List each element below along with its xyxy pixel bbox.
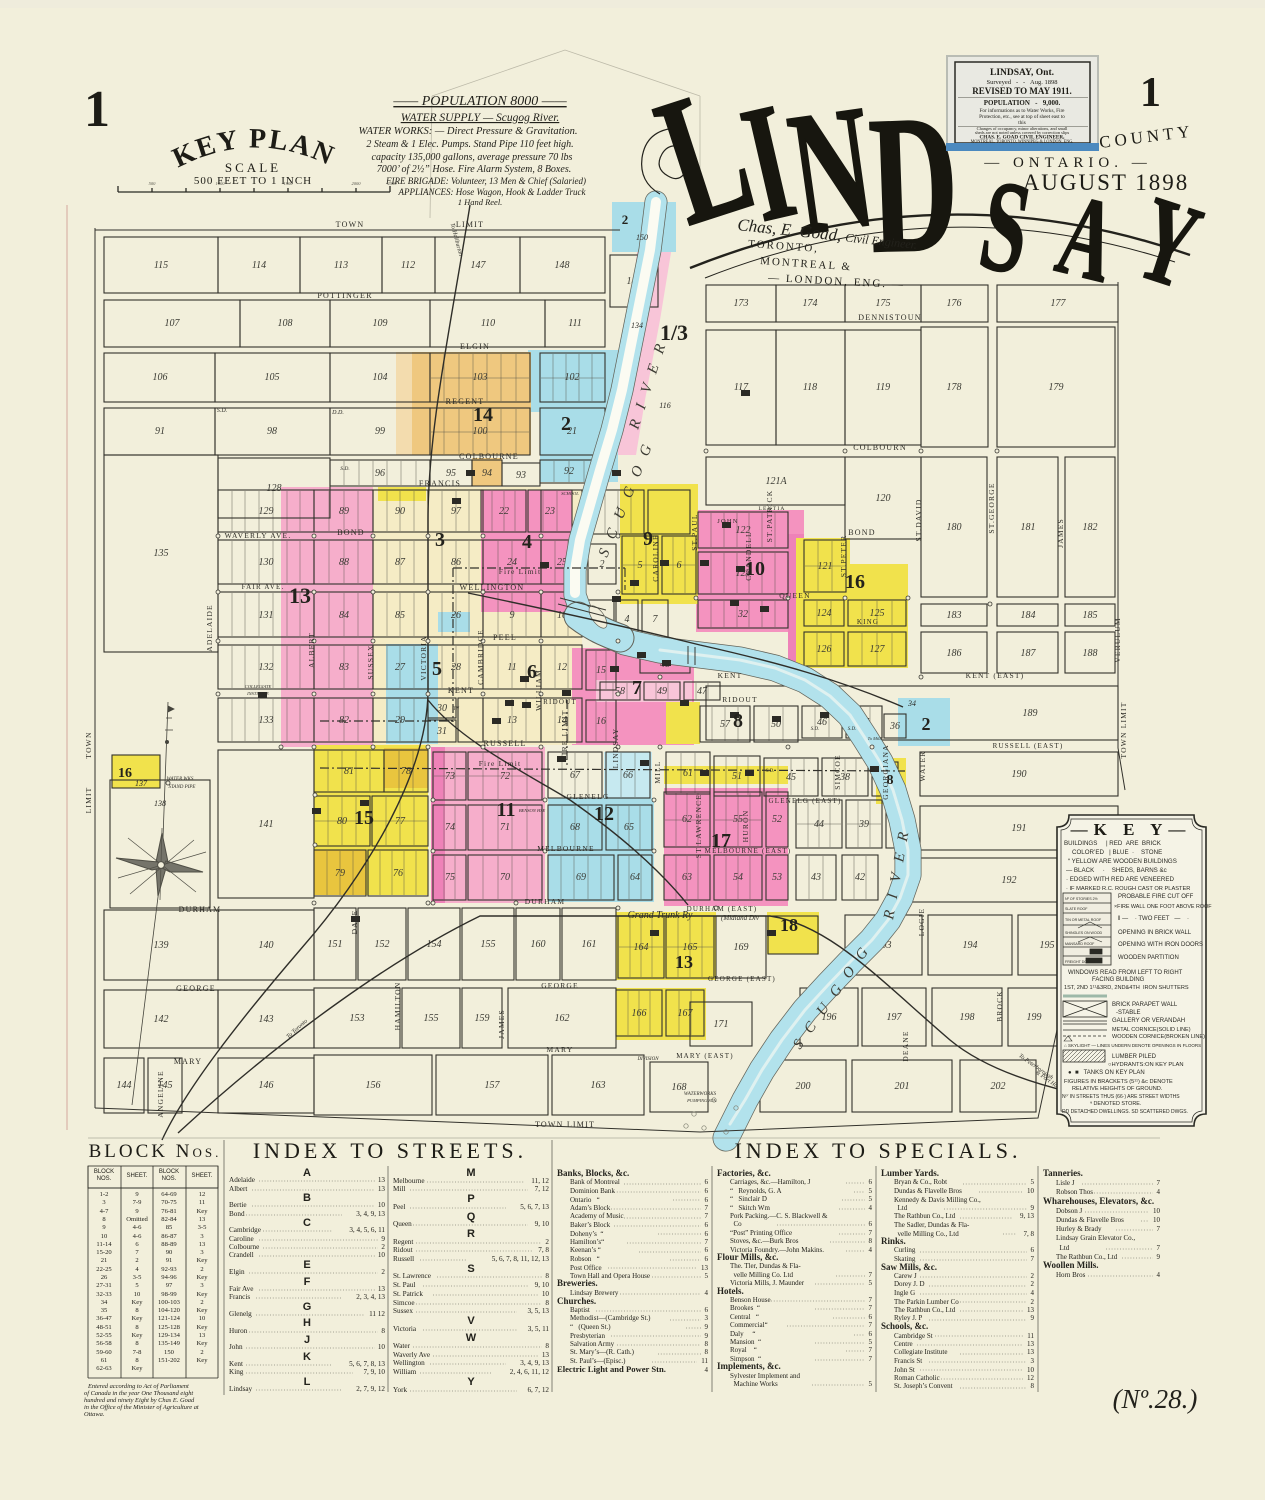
svg-text:2: 2: [545, 1238, 549, 1246]
svg-text:HURON: HURON: [741, 810, 750, 843]
svg-text:2: 2: [1031, 1272, 1035, 1280]
svg-text:The Sadler, Dundas & Fla-: The Sadler, Dundas & Fla-: [894, 1221, 970, 1229]
svg-text:Crandell: Crandell: [229, 1251, 254, 1259]
svg-text:Bond: Bond: [229, 1210, 245, 1218]
svg-text:5, 6, 7, 13: 5, 6, 7, 13: [520, 1203, 549, 1211]
svg-text:2: 2: [200, 1299, 203, 1306]
svg-text:100: 100: [473, 426, 488, 437]
svg-text:48-51: 48-51: [96, 1324, 111, 1331]
svg-text:WINDOWS READ FROM LEFT TO RIGH: WINDOWS READ FROM LEFT TO RIGHT: [1068, 970, 1183, 976]
svg-text:CAMBRIDGE: CAMBRIDGE: [476, 629, 485, 685]
svg-text:St. Mary’s—(R. Cath.): St. Mary’s—(R. Cath.): [570, 1348, 635, 1356]
svg-text:“ Reynolds, G. A: “ Reynolds, G. A: [730, 1187, 782, 1195]
svg-text:GLENELG: GLENELG: [567, 792, 610, 801]
svg-text:39: 39: [858, 819, 869, 830]
svg-text:The Rathbun Co., Ltd: The Rathbun Co., Ltd: [894, 1212, 956, 1220]
svg-text:BLOCK: BLOCK: [94, 1169, 114, 1175]
svg-text:8: 8: [869, 1237, 873, 1245]
svg-text:159: 159: [475, 1013, 490, 1024]
svg-text:Horn Bros: Horn Bros: [1056, 1271, 1086, 1279]
svg-text:5: 5: [705, 1272, 709, 1280]
svg-text:7: 7: [869, 1271, 873, 1279]
svg-text:23: 23: [545, 506, 555, 517]
svg-text:INSTITUTE: INSTITUTE: [246, 691, 269, 696]
svg-text:Key: Key: [132, 1315, 144, 1322]
svg-text:6: 6: [705, 1221, 709, 1229]
svg-text:61: 61: [101, 1357, 108, 1364]
svg-text:LINDSAY: LINDSAY: [611, 728, 620, 769]
svg-text:178: 178: [947, 382, 962, 393]
svg-text:10: 10: [378, 1201, 386, 1209]
svg-text:PUMPING STA.: PUMPING STA.: [686, 1098, 717, 1103]
svg-text:182: 182: [1083, 522, 1098, 533]
svg-text:TN: TN: [453, 707, 460, 712]
svg-text:1: 1: [84, 81, 110, 138]
svg-text:11, 12: 11, 12: [531, 1177, 549, 1185]
svg-text:82-84: 82-84: [161, 1216, 177, 1223]
svg-text:126: 126: [817, 644, 832, 655]
svg-text:74: 74: [445, 822, 455, 833]
svg-text:128: 128: [267, 483, 282, 494]
svg-text:6: 6: [705, 1187, 709, 1195]
svg-text:12: 12: [1027, 1374, 1035, 1382]
svg-text:10: 10: [1027, 1187, 1035, 1195]
svg-text:92: 92: [564, 466, 574, 477]
svg-text:BROCK: BROCK: [995, 990, 1004, 1022]
svg-text:3, 4, 5, 6, 11: 3, 4, 5, 6, 11: [349, 1226, 385, 1234]
svg-text:97: 97: [166, 1282, 173, 1289]
svg-text:164: 164: [634, 942, 649, 953]
svg-text:F: F: [304, 1276, 311, 1288]
svg-text:59-60: 59-60: [96, 1349, 112, 1356]
svg-text:BLOCK: BLOCK: [159, 1169, 179, 1175]
svg-text:WELLINGTON: WELLINGTON: [460, 583, 525, 592]
svg-text:13: 13: [199, 1332, 206, 1339]
svg-text:Victoria: Victoria: [393, 1325, 417, 1333]
svg-text:Lindsay Grain Elevator Co.,: Lindsay Grain Elevator Co.,: [1056, 1234, 1135, 1242]
svg-text:Russell: Russell: [393, 1255, 414, 1263]
svg-text:Wharehouses, Elevators, &c.: Wharehouses, Elevators, &c.: [1043, 1196, 1154, 1206]
svg-text:St. Lawrence: St. Lawrence: [393, 1272, 431, 1280]
svg-text:32-33: 32-33: [96, 1291, 112, 1298]
svg-text:DURHAM: DURHAM: [525, 897, 566, 906]
svg-text:6: 6: [705, 1255, 709, 1263]
svg-text:13: 13: [289, 583, 311, 608]
svg-text:PROBABLE FIRE CUT OFF: PROBABLE FIRE CUT OFF: [1118, 894, 1194, 900]
svg-text:P: P: [467, 1193, 474, 1205]
svg-text:13: 13: [378, 1185, 386, 1193]
svg-text:2: 2: [922, 714, 931, 734]
svg-text:Ottawa.: Ottawa.: [84, 1411, 105, 1418]
svg-text:MARY: MARY: [174, 1057, 202, 1066]
svg-text:SHINGLES ON WOOD: SHINGLES ON WOOD: [1065, 931, 1103, 935]
svg-text:Sylvester Implement and: Sylvester Implement and: [730, 1372, 800, 1380]
svg-text:G: G: [303, 1301, 312, 1313]
svg-text:Collegiate Institute: Collegiate Institute: [894, 1348, 947, 1356]
svg-text:14: 14: [473, 404, 493, 426]
svg-text:7: 7: [869, 1296, 873, 1304]
svg-text:76: 76: [393, 868, 403, 879]
svg-text:139: 139: [154, 940, 169, 951]
svg-text:E: E: [303, 1259, 310, 1271]
svg-text:Lindsay: Lindsay: [229, 1385, 253, 1393]
svg-text:Bank of Montreal: Bank of Montreal: [570, 1178, 620, 1186]
svg-text:of Canada in the year One Thou: of Canada in the year One Thousand eight: [84, 1390, 193, 1397]
svg-text:The Parkin Lumber Co: The Parkin Lumber Co: [894, 1298, 959, 1306]
svg-text:Commercial“: Commercial“: [730, 1321, 768, 1329]
svg-text:6: 6: [705, 1246, 709, 1254]
svg-text:13: 13: [675, 952, 693, 972]
svg-text:36: 36: [889, 721, 900, 732]
svg-text:90: 90: [395, 506, 405, 517]
svg-text:Elgin: Elgin: [229, 1268, 245, 1276]
svg-text:JOHN: JOHN: [717, 518, 738, 525]
svg-text:TOWN LIMIT: TOWN LIMIT: [535, 1120, 595, 1129]
svg-text:S.D.: S.D.: [217, 408, 227, 414]
svg-text:13: 13: [378, 1176, 386, 1184]
svg-text:9: 9: [1157, 1253, 1161, 1261]
svg-text:Albert: Albert: [229, 1185, 247, 1193]
svg-text:Adam’s Block: Adam’s Block: [570, 1204, 611, 1212]
svg-text:Doheny’s “: Doheny’s “: [570, 1230, 603, 1238]
svg-text:45: 45: [786, 772, 796, 783]
svg-text:113: 113: [334, 260, 348, 271]
svg-text:187: 187: [1021, 648, 1037, 659]
svg-text:FAIR AVE.: FAIR AVE.: [242, 583, 285, 591]
svg-text:Central “: Central “: [730, 1313, 759, 1321]
svg-text:98: 98: [267, 426, 277, 437]
svg-text:62: 62: [682, 814, 692, 825]
svg-text:8: 8: [705, 1348, 709, 1356]
svg-text:13: 13: [1027, 1340, 1035, 1348]
svg-text:4: 4: [869, 1204, 873, 1212]
svg-text:90: 90: [166, 1249, 173, 1256]
svg-text:129: 129: [259, 506, 274, 517]
svg-text:3-5: 3-5: [198, 1224, 207, 1231]
svg-text:Curling: Curling: [894, 1246, 916, 1254]
svg-text:S.D.: S.D.: [766, 769, 775, 774]
svg-text:Dundas & Flavelle Bros: Dundas & Flavelle Bros: [1056, 1216, 1124, 1224]
svg-text:Hurley & Brady: Hurley & Brady: [1056, 1225, 1102, 1233]
svg-text:Co: Co: [730, 1220, 742, 1228]
svg-text:144: 144: [117, 1080, 132, 1091]
svg-text:Huron: Huron: [229, 1327, 248, 1335]
svg-text:Churches.: Churches.: [557, 1296, 596, 1306]
svg-text:7, 12: 7, 12: [535, 1185, 550, 1193]
svg-text:GLENELG (EAST): GLENELG (EAST): [769, 797, 842, 805]
svg-text:151: 151: [328, 939, 343, 950]
svg-text:S.D.: S.D.: [340, 466, 349, 472]
svg-text:WAVERLY AVE.: WAVERLY AVE.: [225, 531, 292, 540]
svg-text:● ■ TANKS ON KEY PLAN: ● ■ TANKS ON KEY PLAN: [1068, 1070, 1145, 1076]
svg-text:143: 143: [259, 1014, 274, 1025]
svg-text:87: 87: [395, 557, 406, 568]
svg-text:DALE: DALE: [350, 910, 359, 935]
svg-text:DEANE: DEANE: [901, 1030, 910, 1061]
svg-text:13: 13: [199, 1241, 206, 1248]
svg-text:76-81: 76-81: [161, 1208, 176, 1215]
svg-text:Benson House: Benson House: [730, 1296, 771, 1304]
svg-text:13: 13: [1027, 1306, 1035, 1314]
svg-text:190: 190: [1012, 769, 1027, 780]
svg-text:86-87: 86-87: [161, 1233, 177, 1240]
svg-text:108: 108: [278, 318, 293, 329]
svg-text:To Mills: To Mills: [868, 736, 883, 741]
svg-text:104-120: 104-120: [158, 1307, 181, 1314]
svg-text:BLOCK NOS.: BLOCK NOS.: [89, 1141, 222, 1162]
svg-text:198: 198: [960, 1012, 975, 1023]
svg-text:2: 2: [200, 1266, 203, 1273]
svg-text:FIRE LIMIT: FIRE LIMIT: [560, 710, 569, 761]
svg-text:INDEX TO STREETS.: INDEX TO STREETS.: [253, 1138, 527, 1163]
svg-text:125-128: 125-128: [158, 1324, 181, 1331]
svg-text:18: 18: [780, 915, 798, 935]
svg-text:16: 16: [845, 571, 865, 593]
svg-text:12: 12: [557, 662, 567, 673]
svg-text:TIN OR METAL ROOF: TIN OR METAL ROOF: [1065, 918, 1102, 922]
svg-text:7-8: 7-8: [133, 1349, 142, 1356]
svg-text:176: 176: [947, 298, 962, 309]
svg-text:OPENING WITH IRON DOORS: OPENING WITH IRON DOORS: [1118, 942, 1203, 948]
svg-text:METAL CORNICE(SOLID LINE): METAL CORNICE(SOLID LINE): [1112, 1027, 1191, 1033]
svg-text:Roman Catholic: Roman Catholic: [894, 1374, 940, 1382]
svg-text:77: 77: [395, 816, 406, 827]
svg-text:1 Hand Reel.: 1 Hand Reel.: [458, 197, 503, 207]
svg-text:152: 152: [375, 939, 390, 950]
svg-text:138: 138: [154, 799, 166, 808]
svg-text:Key: Key: [132, 1332, 144, 1339]
svg-text:2: 2: [1031, 1280, 1035, 1288]
svg-text:8: 8: [705, 1340, 709, 1348]
svg-text:TOWN LIMIT: TOWN LIMIT: [1119, 701, 1128, 758]
svg-text:Methodist—(Cambridge St.): Methodist—(Cambridge St.): [570, 1314, 651, 1322]
svg-text:65: 65: [624, 822, 634, 833]
svg-text:42: 42: [855, 872, 865, 883]
svg-text:16: 16: [118, 766, 132, 781]
svg-text:102: 102: [565, 372, 580, 383]
svg-text:capacity 135,000 gallons, ave: capacity 135,000 gallons, average pressu…: [372, 152, 573, 163]
svg-text:KING: KING: [857, 618, 879, 626]
svg-text:4: 4: [625, 614, 630, 625]
svg-text:velle Milling Co. Ltd: velle Milling Co. Ltd: [730, 1271, 793, 1279]
svg-text:John St: John St: [894, 1366, 915, 1374]
svg-text:BOND: BOND: [337, 528, 364, 537]
svg-text:Dobson J: Dobson J: [1056, 1207, 1083, 1215]
svg-text:4: 4: [1031, 1289, 1035, 1297]
svg-text:Entered according to Act of Pa: Entered according to Act of Parliament: [87, 1383, 189, 1390]
svg-text:11: 11: [701, 1357, 708, 1365]
svg-text:“ Sinclair D: “ Sinclair D: [730, 1195, 767, 1203]
svg-text:199: 199: [1027, 1012, 1042, 1023]
svg-text:J: J: [304, 1334, 310, 1346]
svg-text:Dundas & Flavelle Bros: Dundas & Flavelle Bros: [894, 1187, 962, 1195]
svg-text:Flour Mills, &c.: Flour Mills, &c.: [717, 1252, 778, 1262]
svg-text:17: 17: [711, 830, 731, 852]
svg-text:LUMBER PILED: LUMBER PILED: [1112, 1054, 1157, 1060]
svg-text:1ST, 2ND 1¹¹&3RD, 2ND&4TH IRO: 1ST, 2ND 1¹¹&3RD, 2ND&4TH IRON SHUTTERS: [1064, 985, 1189, 991]
svg-text:62-63: 62-63: [96, 1365, 112, 1372]
svg-text:Wellington: Wellington: [393, 1359, 425, 1367]
svg-text:9: 9: [705, 1332, 709, 1340]
svg-text:22-25: 22-25: [96, 1266, 112, 1273]
svg-text:WOODEN CORNICE(BROKEN LINE): WOODEN CORNICE(BROKEN LINE): [1112, 1034, 1205, 1040]
svg-text:DD DETACHED DWELLINGS. SD SCAT: DD DETACHED DWELLINGS. SD SCATTERED DWGS…: [1062, 1109, 1188, 1115]
svg-text:6: 6: [677, 560, 682, 571]
svg-text:79: 79: [335, 868, 345, 879]
svg-text:Ltd: Ltd: [1056, 1244, 1070, 1252]
svg-text:King: King: [229, 1368, 244, 1376]
svg-text:‖ — · TWO FEET — ·: ‖ — · TWO FEET — ·: [1118, 916, 1189, 922]
svg-text:Adelaide: Adelaide: [229, 1176, 255, 1184]
svg-text:VICTORIA: VICTORIA: [419, 635, 428, 680]
svg-text:SHEET.: SHEET.: [191, 1173, 212, 1179]
svg-text:148: 148: [555, 260, 570, 271]
svg-text:135: 135: [154, 548, 169, 559]
svg-text:2: 2: [622, 212, 629, 227]
svg-text:Y: Y: [467, 1376, 475, 1388]
svg-text:Carew J: Carew J: [894, 1272, 917, 1280]
svg-text:11: 11: [1027, 1332, 1034, 1340]
svg-text:11 12: 11 12: [369, 1310, 385, 1318]
svg-text:114: 114: [252, 260, 266, 271]
svg-text:Electric Light and Power Stn.: Electric Light and Power Stn.: [557, 1364, 666, 1374]
svg-text:Ridout: Ridout: [393, 1246, 413, 1254]
svg-text:2 Steam & 1 Elec. Pumps. Stand: 2 Steam & 1 Elec. Pumps. Stand Pipe 110 …: [366, 139, 573, 150]
svg-text:142: 142: [154, 1014, 169, 1025]
svg-text:GEORGE: GEORGE: [176, 984, 216, 993]
svg-text:188: 188: [1083, 648, 1098, 659]
svg-text:155: 155: [481, 939, 496, 950]
svg-text:For informations as to Water W: For informations as to Water Works, Fire: [980, 107, 1066, 114]
svg-text:5, 6, 7, 8, 13: 5, 6, 7, 8, 13: [349, 1360, 385, 1368]
svg-text:5: 5: [1031, 1178, 1035, 1186]
svg-text:121-124: 121-124: [158, 1315, 181, 1322]
svg-text:KENT: KENT: [448, 686, 474, 695]
svg-text:7: 7: [705, 1204, 709, 1212]
svg-text:63: 63: [682, 872, 692, 883]
svg-text:115: 115: [154, 260, 168, 271]
svg-text:155: 155: [424, 1013, 439, 1024]
svg-text:PEEL: PEEL: [493, 633, 517, 642]
svg-text:2: 2: [381, 1243, 385, 1251]
svg-text:200: 200: [796, 1081, 811, 1092]
svg-text:7-9: 7-9: [133, 1199, 142, 1206]
svg-text:Saw Mills, &c.: Saw Mills, &c.: [881, 1262, 937, 1272]
svg-text:RIDOUT: RIDOUT: [722, 695, 758, 704]
svg-text:8: 8: [545, 1272, 549, 1280]
svg-text:7: 7: [1157, 1244, 1161, 1252]
svg-text:Bryan & Co., Robt: Bryan & Co., Robt: [894, 1178, 947, 1186]
svg-text:Key: Key: [132, 1365, 144, 1372]
svg-text:89: 89: [339, 506, 349, 517]
svg-text:6: 6: [527, 661, 537, 683]
svg-text:MANSARD ROOF: MANSARD ROOF: [1065, 942, 1095, 946]
svg-text:6: 6: [705, 1178, 709, 1186]
svg-text:9, 10: 9, 10: [535, 1281, 550, 1289]
svg-text:St. Joseph’s Convent: St. Joseph’s Convent: [894, 1382, 953, 1390]
svg-text:Baker’s Block: Baker’s Block: [570, 1221, 611, 1229]
svg-text:7, 8: 7, 8: [538, 1246, 549, 1254]
svg-text:162: 162: [555, 1013, 570, 1024]
svg-text:ANGELINE: ANGELINE: [156, 1070, 165, 1118]
svg-text:171: 171: [714, 1019, 729, 1030]
svg-text:MELBOURNE: MELBOURNE: [537, 844, 594, 853]
svg-text:137: 137: [135, 779, 148, 788]
svg-text:Rinks.: Rinks.: [881, 1236, 906, 1246]
svg-text:106: 106: [153, 372, 168, 383]
svg-text:5: 5: [869, 1338, 873, 1346]
svg-text:6: 6: [705, 1230, 709, 1238]
svg-text:FIGURES IN BRACKETS (5¹¹) &c D: FIGURES IN BRACKETS (5¹¹) &c DENOTE: [1064, 1079, 1173, 1085]
svg-text:22: 22: [499, 506, 509, 517]
svg-text:ELGIN: ELGIN: [460, 342, 490, 351]
svg-text:Banks, Blocks, &c.: Banks, Blocks, &c.: [557, 1168, 629, 1178]
svg-text:91: 91: [155, 426, 165, 437]
svg-text:15: 15: [596, 665, 606, 676]
svg-text:Nº’ IN STREETS THUS (66·) ARE: Nº’ IN STREETS THUS (66·) ARE STREET WID…: [1062, 1094, 1180, 1100]
svg-text:St. Patrick: St. Patrick: [393, 1290, 423, 1298]
svg-text:Sussex: Sussex: [393, 1307, 413, 1315]
svg-text:112: 112: [401, 260, 415, 271]
svg-text:JAMES: JAMES: [1056, 518, 1065, 548]
svg-text:ST.LAWRENCE: ST.LAWRENCE: [694, 794, 703, 858]
svg-text:6: 6: [869, 1178, 873, 1186]
svg-text:Stoves, &c.—Burk Bros: Stoves, &c.—Burk Bros: [730, 1237, 799, 1245]
svg-text:SCALE: SCALE: [225, 160, 281, 175]
svg-text:157: 157: [485, 1080, 501, 1091]
svg-text:Key: Key: [197, 1307, 209, 1314]
svg-text:“ YELLOW ARE WOODEN BUILDINGS: “ YELLOW ARE WOODEN BUILDINGS: [1068, 858, 1177, 865]
svg-text:83: 83: [339, 662, 349, 673]
svg-text:52-55: 52-55: [96, 1332, 112, 1339]
svg-text:COLBOURNE: COLBOURNE: [459, 452, 519, 461]
svg-text:Ingle G: Ingle G: [894, 1289, 915, 1297]
svg-text:7: 7: [705, 1212, 709, 1220]
svg-text:RUSSELL: RUSSELL: [483, 739, 526, 748]
svg-text:GEORGE (EAST): GEORGE (EAST): [708, 975, 776, 983]
svg-text:AUGUST 1898: AUGUST 1898: [1023, 170, 1190, 195]
svg-text:10: 10: [378, 1343, 386, 1351]
svg-text:12: 12: [199, 1191, 206, 1198]
svg-text:Implements, &c.: Implements, &c.: [717, 1361, 781, 1371]
svg-text:98-99: 98-99: [161, 1291, 177, 1298]
svg-text:A: A: [303, 1167, 311, 1179]
svg-text:9: 9: [1031, 1314, 1035, 1322]
svg-text:93: 93: [516, 470, 526, 481]
svg-text:○HYDRANTS:ON KEY PLAN: ○HYDRANTS:ON KEY PLAN: [1108, 1062, 1184, 1068]
svg-text:10: 10: [745, 558, 765, 580]
svg-text:3-5: 3-5: [133, 1274, 142, 1281]
svg-text:VERULUM: VERULUM: [1113, 617, 1122, 662]
svg-text:7: 7: [705, 1238, 709, 1246]
svg-text:8: 8: [545, 1342, 549, 1350]
svg-text:104: 104: [373, 372, 388, 383]
svg-text:1000: 1000: [216, 181, 226, 186]
svg-text:64: 64: [630, 872, 640, 883]
svg-text:26: 26: [101, 1274, 108, 1281]
svg-text:Woollen Mills.: Woollen Mills.: [1043, 1260, 1099, 1270]
svg-text:H: H: [303, 1317, 311, 1329]
svg-text:129-134: 129-134: [158, 1332, 181, 1339]
svg-text:95: 95: [446, 468, 456, 479]
svg-text:FIRE BRIGADE: Volunteer, 13 Me: FIRE BRIGADE: Volunteer, 13 Men & Chief …: [385, 176, 586, 186]
svg-text:7: 7: [869, 1355, 873, 1363]
svg-text:169: 169: [734, 942, 749, 953]
svg-text:COLOR’ED | BLUE · STONE: COLOR’ED | BLUE · STONE: [1072, 849, 1162, 856]
svg-text:4: 4: [1157, 1271, 1161, 1279]
svg-text:Protection, etc., see at top o: Protection, etc., see at top of sheet ea…: [979, 113, 1065, 120]
svg-text:7: 7: [869, 1321, 873, 1329]
